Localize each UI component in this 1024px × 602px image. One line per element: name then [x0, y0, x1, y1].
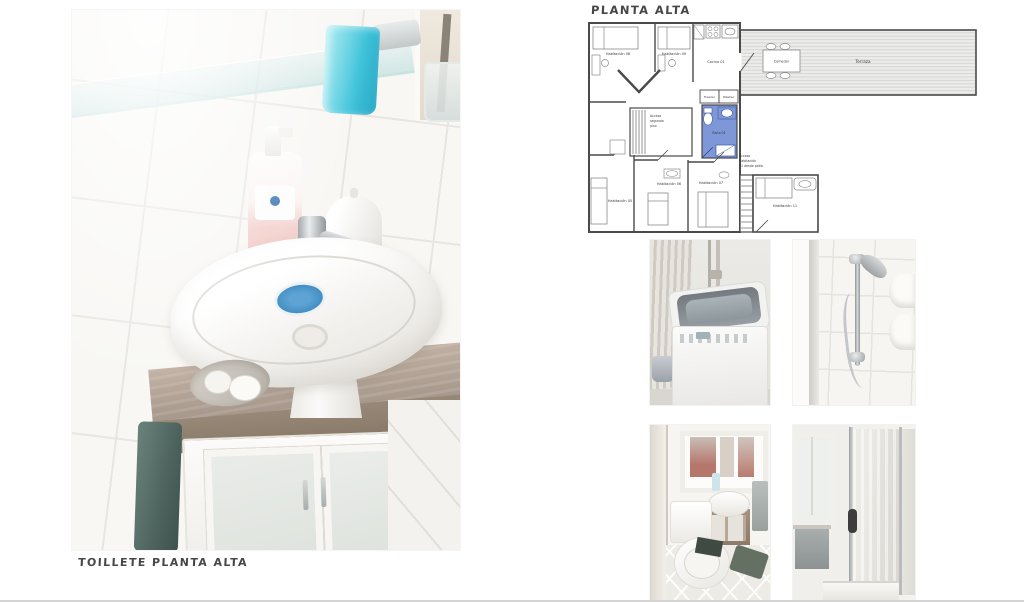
- window-light: [793, 240, 809, 405]
- chair-icon: [766, 44, 776, 50]
- toilet-icon: [704, 113, 713, 125]
- shower-slide-bar: [855, 256, 860, 366]
- thumb-shower-handset: [793, 240, 915, 405]
- annotation: Acceso: [650, 114, 661, 118]
- shower-glass-edge: [809, 240, 819, 405]
- thumb-shower-door: [793, 425, 915, 602]
- corner-caddy: [889, 274, 915, 308]
- blue-bottle: [712, 473, 720, 491]
- appliance-label: Washer: [723, 95, 735, 99]
- bed-icon: [591, 178, 607, 224]
- bathroom-sink-icon: [722, 109, 733, 117]
- washer-controls: [680, 334, 750, 343]
- room-label: Cocina 01: [707, 60, 724, 64]
- desk-icon: [592, 55, 600, 75]
- terraza-label: Terraza: [854, 59, 871, 64]
- pipe-valve: [710, 270, 722, 279]
- bed-icon: [658, 27, 690, 49]
- window-mullion: [811, 437, 813, 515]
- door-handle: [848, 509, 857, 533]
- chair-icon: [669, 60, 676, 67]
- room-label: Habitación 06: [657, 182, 681, 186]
- brochure-page: TOILLETE PLANTA ALTA PLANTA ALTA Comedor…: [0, 0, 1024, 602]
- floorplan-title: PLANTA ALTA: [591, 3, 691, 17]
- window: [793, 433, 835, 527]
- room-label: Habitación 09: [662, 52, 686, 56]
- frosted-shower-door: [853, 429, 899, 593]
- window-pane: [690, 437, 716, 477]
- thumb-toilet-room: [650, 425, 770, 600]
- floorplan: Comedor Terraza Habitación 08 Habitación…: [588, 22, 978, 234]
- toilet-tank-icon: [704, 108, 712, 113]
- annotation: piso: [650, 124, 657, 128]
- bed-icon: [756, 178, 792, 198]
- window-pane: [720, 437, 734, 477]
- room-label: Baño 04: [712, 131, 725, 135]
- gray-towel: [795, 529, 829, 569]
- corner-caddy: [889, 314, 915, 350]
- door-gap: [739, 53, 742, 71]
- closet-icon: [610, 140, 625, 154]
- patio-stairs: [740, 175, 753, 232]
- main-photo-caption: TOILLETE PLANTA ALTA: [78, 556, 249, 569]
- vanity-doors: [710, 515, 746, 541]
- annotation: Habitación: [739, 159, 756, 163]
- chair-icon: [602, 60, 609, 67]
- bar-bracket: [849, 352, 865, 362]
- towel: [752, 481, 768, 531]
- appliance-label: Freezer: [704, 95, 716, 99]
- thumb-washing-machine: [650, 240, 770, 405]
- annotation: Acceso: [739, 154, 750, 158]
- room-label: Habitación 07: [699, 181, 723, 185]
- shower-step: [823, 581, 899, 602]
- room-label: Habitación 11: [773, 204, 797, 208]
- comedor-label: Comedor: [774, 60, 790, 64]
- bed-icon: [648, 193, 668, 225]
- chair-icon: [780, 73, 790, 79]
- washer-display: [696, 332, 710, 339]
- annotation: segundo: [650, 119, 664, 123]
- chair-icon: [766, 73, 776, 79]
- bed-icon: [698, 192, 728, 227]
- stove-icon: [706, 25, 720, 38]
- room-label: Habitación 05: [608, 199, 632, 203]
- shower-head: [857, 250, 890, 281]
- kitchen-sink-icon: [722, 25, 738, 38]
- small-sink: [708, 491, 750, 517]
- chair-icon: [780, 44, 790, 50]
- annotation: 11 desde patio: [739, 164, 763, 168]
- window-pane: [738, 437, 754, 477]
- main-photo-bathroom-sink: [72, 10, 460, 550]
- room-label: Habitación 08: [606, 52, 630, 56]
- bed-icon: [593, 27, 638, 49]
- vanity-outline: [794, 178, 816, 190]
- bucket: [652, 356, 674, 382]
- desk-icon: [658, 55, 665, 71]
- fixed-panel: [902, 429, 915, 595]
- light-glow: [72, 10, 460, 550]
